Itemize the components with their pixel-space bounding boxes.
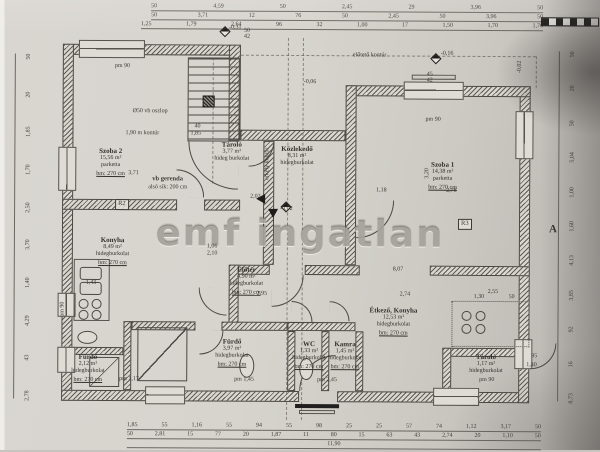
room-floor: hidegburkolat — [469, 368, 502, 375]
entry-threshold — [295, 404, 339, 408]
window-sill — [412, 75, 456, 80]
balcony-contour-label: erkély kontúr — [264, 148, 270, 180]
parapet-mark: pm 90 — [60, 302, 66, 317]
wall — [305, 265, 360, 275]
dim-value: 15 — [359, 432, 365, 438]
dim-value: 20 — [474, 433, 480, 439]
window — [79, 40, 145, 58]
room-name: Közlekedő — [280, 145, 313, 153]
room-floor: hideg burkolat — [214, 155, 249, 162]
dim-value: 11 — [303, 432, 309, 438]
dim-text: 1,85 — [190, 130, 201, 136]
dim-value: 1,00 — [569, 187, 575, 198]
dim-value: 11,90 — [327, 441, 340, 447]
dim-value: 4,59 — [213, 4, 224, 10]
dim-value: 4,29 — [24, 315, 30, 326]
room-height: bm: 270 cm — [96, 171, 125, 178]
dim-value: 1,87 — [271, 432, 282, 438]
dim-value: 50 — [151, 12, 157, 18]
dim-text: 3,20 — [424, 168, 430, 179]
room-floor: hidegburkolat — [369, 321, 417, 328]
room-label-etkezo-konyha: Étkező, Konyha12,53 m²hidegburkolatbm: 2… — [369, 306, 417, 337]
dim-value: 50 — [537, 5, 543, 11]
room-label-kozlekedo: Közlekedő8,31 m²hidegburkolat — [280, 145, 313, 167]
stove-burner — [476, 311, 486, 321]
window — [433, 388, 479, 406]
dim-value: 25 — [376, 423, 382, 429]
room-name: Fürdő — [215, 338, 248, 346]
dim-value: 2,45 — [388, 13, 399, 19]
door-arc — [329, 301, 349, 321]
dim-value: 50 — [535, 424, 541, 430]
room-ref: R2 — [115, 199, 129, 210]
room-floor: hidegburkolat — [71, 368, 104, 375]
dimension-row-bottom-3: 11,90 — [127, 440, 541, 450]
dim-value: 3,96 — [486, 14, 497, 20]
dim-value: 4,13 — [569, 256, 575, 267]
room-name: Szoba 1 — [428, 161, 457, 169]
beam-sublabel: alsó sík: 200 cm — [148, 184, 187, 190]
dim-text: 42 — [244, 34, 250, 40]
dim-value: 25 — [346, 423, 352, 429]
room-name: Konyha — [96, 236, 129, 244]
room-floor: hidegburkolat — [215, 352, 248, 359]
window — [58, 147, 76, 191]
floor-plan-drawing: 504,59502,45293,9650 503,711276502,45503… — [0, 0, 600, 452]
dim-value: 15 — [187, 431, 193, 437]
dim-value: 98 — [316, 423, 322, 429]
level-mark: -0,06 — [304, 79, 317, 85]
parapet-mark: pm 1,17 — [119, 376, 139, 382]
wall — [240, 130, 345, 142]
dim-value: 92 — [568, 327, 574, 333]
room-name: Tároló — [469, 353, 502, 361]
dim-value: 50 — [342, 13, 348, 19]
dim-value: 32 — [317, 22, 323, 28]
porch-contour-label: előtető kontúr — [353, 52, 387, 58]
dim-value: 63 — [386, 432, 392, 438]
stove-burner — [79, 299, 89, 309]
room-ref: R3 — [458, 219, 472, 230]
room-name: Előtér — [230, 266, 263, 274]
dim-value: 20 — [570, 86, 576, 92]
wall — [287, 322, 355, 331]
porch-contour-line — [241, 55, 536, 58]
dim-value: 3,85 — [569, 290, 575, 301]
dim-value: 20 — [26, 91, 32, 97]
dim-value: 1,40 — [25, 277, 31, 288]
dim-value: 1,79 — [186, 21, 197, 27]
dim-value: 29 — [408, 5, 414, 11]
stove-burner — [79, 310, 89, 320]
scale-bar — [541, 17, 599, 26]
wall — [442, 348, 451, 392]
dim-value: 17 — [402, 23, 408, 29]
dim-value: 1,16 — [191, 422, 202, 428]
room-height: bm: 270 cm — [96, 260, 129, 267]
dim-text: 1,18 — [376, 187, 387, 193]
dim-value: 8,73 — [568, 393, 574, 404]
kitchen-sink — [80, 267, 102, 280]
contour-label: 1,90 m kontúr — [125, 130, 159, 136]
concrete-column — [203, 95, 215, 107]
room-floor: parketta — [428, 176, 457, 183]
room-floor: parketta — [96, 162, 125, 169]
room-name: Kamra — [328, 340, 361, 348]
level-mark: -0,02 — [280, 206, 293, 212]
watermark: emf ingatlan — [0, 210, 600, 256]
dim-text: 2,78 — [446, 188, 457, 194]
room-name: Étkező, Konyha — [370, 306, 418, 314]
dim-value: 1,50 — [443, 23, 454, 29]
dim-text: 2,95 — [257, 291, 268, 297]
room-height: bm: 270 cm — [292, 364, 325, 371]
parapet-mark: pm 1,45 — [234, 377, 254, 383]
dim-value: 2,45 — [342, 4, 353, 10]
dim-text: 1,40 — [526, 362, 537, 368]
room-label-tarolo-lepcso: Tároló3,77 m²hideg burkolat — [214, 141, 249, 163]
parapet-mark: pm 90 — [115, 63, 130, 69]
section-marker: A — [549, 224, 557, 235]
dim-value: 2,81 — [155, 431, 166, 437]
dim-value: 1,12 — [466, 424, 477, 430]
room-label-tarolo-2: Tároló1,17 m²hidegburkolat — [469, 353, 502, 375]
dim-value: 3,17 — [500, 424, 511, 430]
dim-text: 1,06 — [207, 244, 218, 250]
room-height: bm: 270 cm — [215, 361, 248, 368]
dim-value: 1,00 — [357, 22, 368, 28]
dim-value: 50 — [280, 4, 286, 10]
dim-value: 50 — [439, 14, 445, 20]
stove-burner — [92, 310, 102, 320]
room-floor: hidegburkolat — [230, 281, 263, 288]
room-label-szoba-2: Szoba 215,56 m²parkettabm: 270 cm — [96, 147, 125, 178]
dim-value: 50 — [151, 3, 157, 9]
dim-value: 94 — [256, 423, 262, 429]
room-floor: hidegburkolat — [96, 251, 129, 258]
stove-burner — [92, 299, 102, 309]
level-mark: -0,16 — [441, 51, 454, 57]
dim-value: 50 — [570, 120, 576, 126]
dim-value: 50 — [127, 431, 133, 437]
dim-value: 1,70 — [25, 164, 31, 175]
room-name: Szoba 2 — [96, 147, 125, 155]
dim-value: 20 — [243, 432, 249, 438]
wall — [430, 266, 530, 277]
dim-value: 2,78 — [24, 390, 30, 401]
parapet-mark: pm 2,45 — [317, 377, 337, 383]
dim-text: 2,55 — [488, 289, 499, 295]
dim-text: 50 — [509, 294, 515, 300]
dim-value: 1,10 — [502, 433, 513, 439]
dim-value: 50 — [26, 54, 32, 60]
dim-value: 96 — [276, 22, 282, 28]
dim-value: 43 — [414, 433, 420, 439]
dim-value: 55 — [286, 423, 292, 429]
dim-value: 1,70 — [488, 23, 499, 29]
window — [404, 82, 464, 100]
dim-text: 95 — [531, 353, 537, 359]
dim-value: 1,85 — [127, 422, 138, 428]
dim-value: 12 — [249, 13, 255, 19]
stove-burner — [461, 324, 471, 334]
dim-value: 55 — [226, 423, 232, 429]
dim-value: 1,85 — [25, 127, 31, 138]
dim-text: 1,30 — [474, 294, 485, 300]
level-mark: -0,02 — [517, 61, 523, 74]
porch-contour-line — [536, 56, 537, 88]
dim-value: 57 — [406, 424, 412, 430]
dim-text: 40 — [194, 123, 200, 129]
dim-value: 74 — [436, 424, 442, 430]
room-floor: hidegburkolat — [292, 355, 325, 362]
room-name: Fürdő — [71, 353, 104, 361]
beam-label: vb gerenda — [152, 176, 183, 183]
room-label-wc: WC1,33 m²hidegburkolatbm: 270 cm — [292, 340, 325, 371]
dim-text: 2,02 — [250, 194, 261, 200]
wall — [204, 199, 240, 210]
dim-text: 3,71 — [128, 170, 139, 176]
door-arc — [199, 287, 227, 315]
room-label-furdo-2: Fürdő3,97 m²hidegburkolatbm: 270 cm — [215, 338, 248, 369]
dim-value: 76 — [295, 13, 301, 19]
room-floor: hidegburkolat — [328, 355, 361, 362]
room-label-kamra: Kamra1,45 m²hidegburkolatbm: 270 cm — [328, 340, 361, 371]
entry-step — [299, 410, 335, 414]
room-height: bm: 270 cm — [369, 330, 417, 337]
dim-value: 80 — [331, 432, 337, 438]
room-label-furdo-1: Fürdő2,12 m²hidegburkolatbm: 270 cm — [71, 353, 104, 384]
dim-value: 16 — [568, 361, 574, 367]
dim-value: 55 — [161, 422, 167, 428]
level-mark: -0,31 — [229, 25, 242, 31]
dim-value: 5,04 — [569, 152, 575, 163]
room-floor: hidegburkolat — [280, 160, 313, 167]
window — [515, 111, 533, 159]
parapet-mark: pm 90 — [426, 117, 441, 123]
stove-burner — [475, 324, 485, 334]
room-height: bm: 270 cm — [328, 364, 361, 371]
scanned-floor-plan-page: 504,59502,45293,9650 503,711276502,45503… — [0, 0, 600, 450]
dim-text: 1,43 — [86, 280, 97, 286]
stove-burner — [462, 311, 472, 321]
room-name: WC — [292, 340, 325, 348]
dim-text: 2,74 — [400, 292, 411, 298]
column-label: Ø50 vb oszlop — [133, 108, 168, 114]
dim-text: 2,10 — [207, 251, 218, 257]
dim-value: 50 — [570, 51, 576, 57]
dim-text: 8,07 — [393, 266, 404, 272]
dim-text: 42 — [427, 78, 433, 84]
parapet-mark: pm 90 — [479, 377, 494, 383]
room-label-konyha: Konyha8,49 m²hidegburkolatbm: 270 cm — [96, 236, 129, 267]
window — [145, 386, 185, 404]
wall — [221, 322, 287, 331]
dim-value: 1,25 — [141, 21, 152, 27]
dim-value: 50 — [535, 433, 541, 439]
washbasin — [77, 331, 97, 344]
dim-value: 43 — [24, 355, 30, 361]
dim-value: 3,71 — [198, 12, 209, 18]
bathtub — [137, 327, 187, 381]
dim-value: 3,96 — [471, 5, 482, 11]
dimension-row-top-3: 1,251,792,6496321,00171,501,701,76 — [141, 21, 543, 31]
room-height: bm: 270 cm — [71, 377, 104, 384]
room-name: Tároló — [214, 141, 249, 149]
dim-value: 77 — [215, 432, 221, 438]
dim-value: 2,74 — [442, 433, 453, 439]
